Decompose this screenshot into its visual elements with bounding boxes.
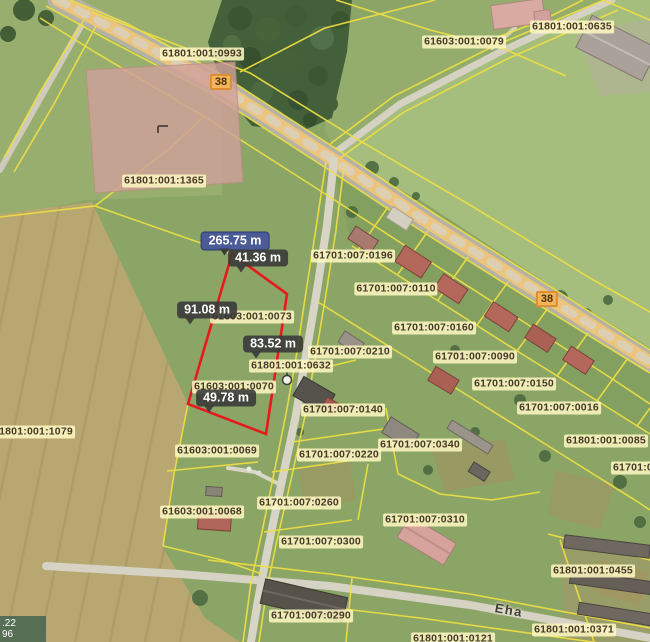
map-viewport[interactable]: 61801:001:0993 61603:001:0079 61801:001:…	[0, 0, 650, 642]
measurement-segment-label: 83.52 m	[243, 336, 303, 353]
coordinate-overlay: .22 96	[0, 616, 46, 642]
measurement-segment-label: 91.08 m	[177, 302, 237, 319]
measurement-total-label: 265.75 m	[201, 232, 270, 251]
measurement-segment-label: 41.36 m	[228, 250, 288, 267]
coordinate-line: .22	[2, 618, 42, 629]
coordinate-line: 96	[2, 629, 42, 640]
measurement-layer: 265.75 m 41.36 m 91.08 m 83.52 m 49.78 m	[0, 0, 650, 642]
measurement-segment-label: 49.78 m	[196, 390, 256, 407]
